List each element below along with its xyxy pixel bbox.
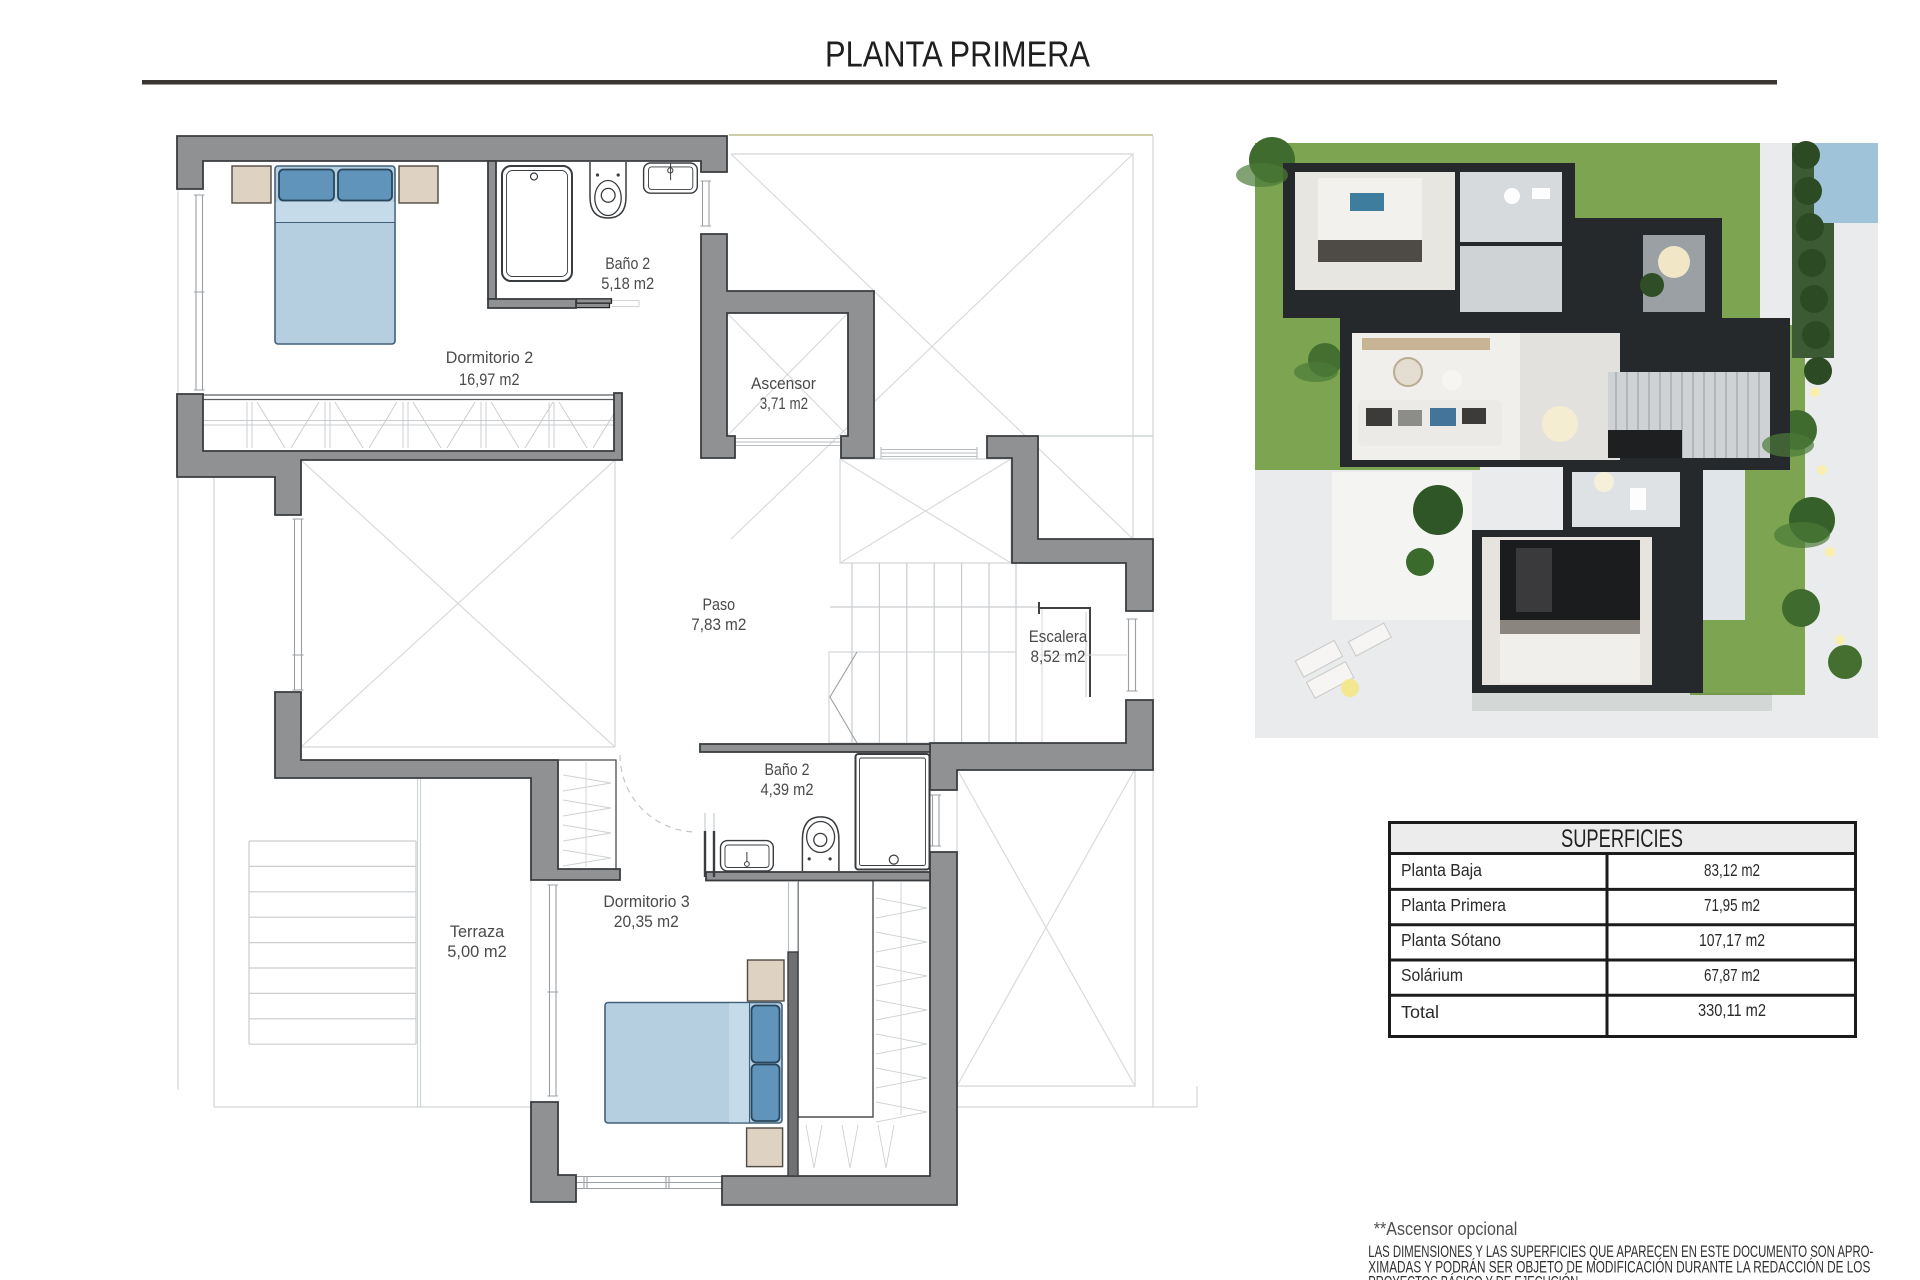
svg-text:3,71 m2: 3,71 m2 bbox=[760, 394, 808, 413]
svg-text:16,97 m2: 16,97 m2 bbox=[459, 370, 520, 389]
svg-text:7,83 m2: 7,83 m2 bbox=[691, 615, 746, 634]
svg-text:107,17 m2: 107,17 m2 bbox=[1699, 930, 1765, 950]
svg-text:71,95 m2: 71,95 m2 bbox=[1704, 895, 1760, 915]
svg-text:Ascensor: Ascensor bbox=[751, 374, 816, 393]
svg-text:4,39 m2: 4,39 m2 bbox=[761, 780, 814, 799]
svg-text:330,11 m2: 330,11 m2 bbox=[1698, 1000, 1766, 1020]
svg-text:83,12 m2: 83,12 m2 bbox=[1704, 860, 1760, 880]
svg-text:Escalera: Escalera bbox=[1029, 627, 1088, 646]
svg-text:PLANTA PRIMERA: PLANTA PRIMERA bbox=[825, 34, 1090, 75]
svg-text:67,87 m2: 67,87 m2 bbox=[1704, 965, 1760, 985]
svg-text:Dormitorio 3: Dormitorio 3 bbox=[603, 892, 689, 911]
svg-text:Total: Total bbox=[1401, 1002, 1439, 1022]
svg-text:Baño 2: Baño 2 bbox=[765, 760, 810, 779]
svg-text:Planta Sótano: Planta Sótano bbox=[1401, 930, 1501, 950]
svg-text:5,18 m2: 5,18 m2 bbox=[601, 274, 654, 293]
svg-text:Solárium: Solárium bbox=[1401, 965, 1463, 985]
svg-text:20,35 m2: 20,35 m2 bbox=[614, 912, 679, 931]
svg-text:Terraza: Terraza bbox=[450, 922, 505, 941]
svg-text:8,52 m2: 8,52 m2 bbox=[1031, 647, 1086, 666]
svg-text:Baño 2: Baño 2 bbox=[605, 254, 650, 273]
svg-text:**Ascensor opcional: **Ascensor opcional bbox=[1374, 1219, 1518, 1239]
svg-text:5,00 m2: 5,00 m2 bbox=[447, 942, 507, 961]
svg-text:Paso: Paso bbox=[703, 595, 736, 614]
svg-text:PROYECTOS BÁSICO Y DE EJECUCIÓ: PROYECTOS BÁSICO Y DE EJECUCIÓN bbox=[1368, 1273, 1578, 1280]
svg-text:Dormitorio 2: Dormitorio 2 bbox=[446, 348, 534, 367]
svg-text:Planta Baja: Planta Baja bbox=[1401, 860, 1482, 880]
svg-text:SUPERFICIES: SUPERFICIES bbox=[1561, 825, 1683, 853]
svg-text:Planta Primera: Planta Primera bbox=[1401, 895, 1506, 915]
